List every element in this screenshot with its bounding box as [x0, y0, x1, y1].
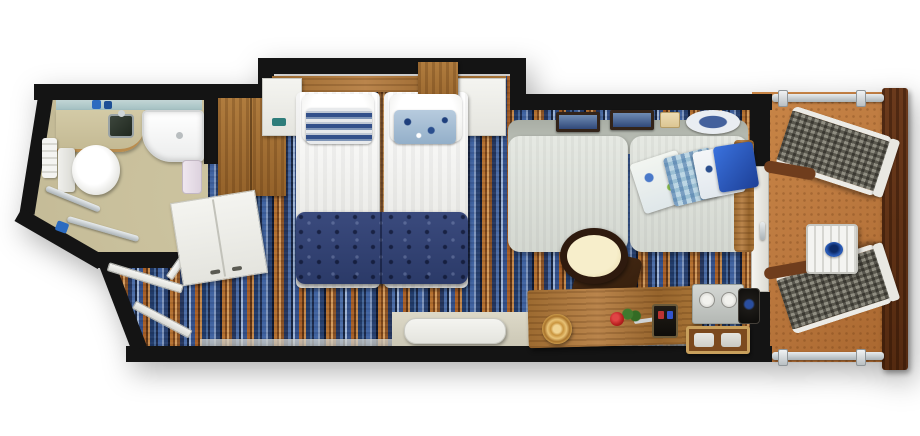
- balcony-rail-bottom: [772, 352, 884, 360]
- drain: [176, 132, 183, 139]
- floor-plan-canvas: [0, 0, 920, 436]
- pillow-striped: [306, 108, 372, 144]
- bottle: [721, 333, 741, 347]
- nightstand-item: [272, 118, 286, 126]
- wall-art-image: [613, 113, 651, 127]
- rail-post: [778, 349, 788, 366]
- phone-button: [658, 311, 664, 319]
- phone-button: [667, 311, 673, 319]
- bottle-tray: [686, 326, 750, 354]
- cup-tray: [692, 284, 744, 324]
- wall-shelf: [404, 318, 506, 344]
- toiletry-bottle: [92, 100, 101, 109]
- glass: [721, 292, 737, 308]
- shower-tub: [142, 110, 204, 162]
- sofa-pillow-royal-blue: [713, 141, 760, 193]
- toiletry-bottle: [104, 101, 112, 109]
- chair-seat: [560, 228, 628, 284]
- telephone: [652, 304, 678, 338]
- shower-door-panel: [182, 160, 202, 194]
- glass: [699, 292, 715, 308]
- balcony-rail-top: [772, 94, 884, 102]
- bottle: [694, 333, 714, 347]
- wall-art-frame: [610, 110, 654, 130]
- blue-bowl: [825, 242, 843, 257]
- faucet: [118, 110, 125, 117]
- wardrobe-door-seam: [212, 199, 226, 276]
- ice-bucket: [738, 288, 760, 324]
- rail-post: [778, 90, 788, 107]
- balcony-railing: [882, 88, 908, 370]
- decorative-plate: [686, 110, 740, 134]
- closet-door-seam: [250, 98, 252, 196]
- chair-cushion: [567, 235, 621, 277]
- runner-seam: [380, 212, 382, 284]
- wall-bottom: [126, 346, 772, 362]
- wardrobe-handle: [232, 266, 243, 272]
- rose: [610, 312, 624, 326]
- rail-post: [856, 90, 866, 107]
- wall-alcove-top: [258, 58, 526, 74]
- small-ornament: [660, 112, 680, 128]
- wall-art-frame: [556, 112, 600, 132]
- sink-basin: [108, 114, 134, 138]
- toilet: [72, 145, 120, 195]
- wardrobe: [170, 190, 268, 286]
- wall-top-main: [510, 94, 772, 110]
- wall-art-image: [559, 115, 597, 129]
- rail-post: [856, 349, 866, 366]
- wardrobe-handle: [210, 269, 221, 275]
- towel-stack: [42, 138, 57, 178]
- door-handle: [760, 222, 765, 240]
- pillow-floral: [394, 110, 456, 144]
- floor-plan: [0, 0, 920, 436]
- balcony-table: [806, 224, 858, 274]
- gold-ornament: [542, 314, 572, 344]
- bed-runner: [296, 212, 468, 284]
- glass-shelf: [56, 100, 202, 110]
